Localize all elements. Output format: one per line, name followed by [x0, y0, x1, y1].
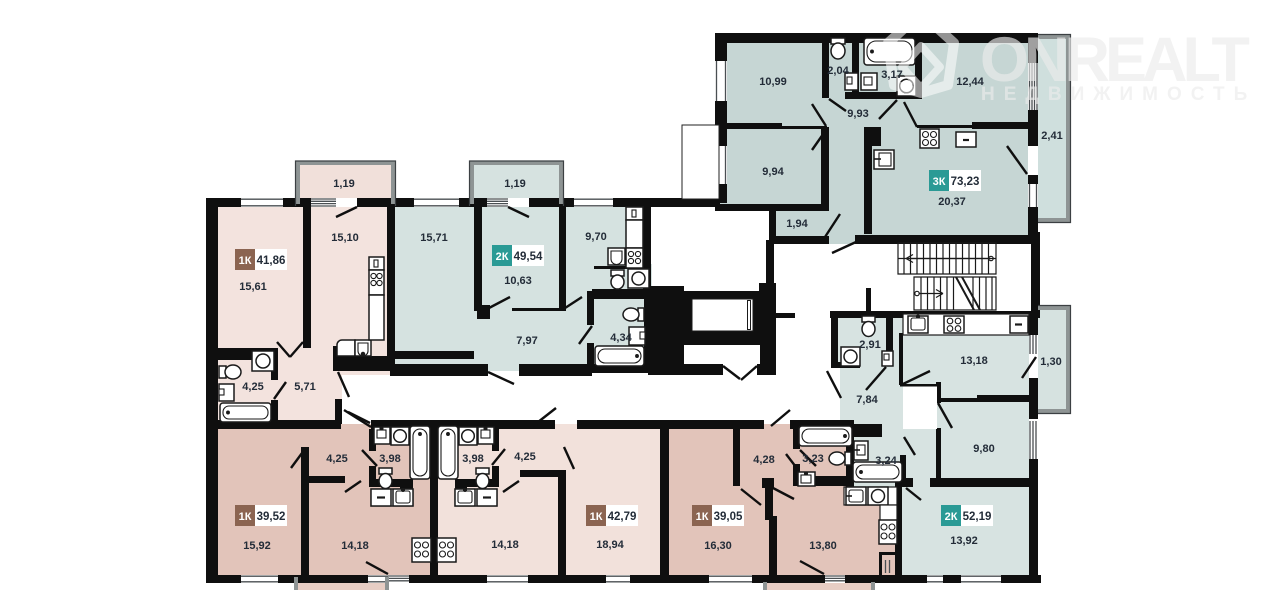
svg-text:39,05: 39,05 [714, 511, 743, 523]
svg-text:9,94: 9,94 [762, 166, 784, 178]
svg-text:3,24: 3,24 [875, 455, 897, 467]
svg-text:2К: 2К [945, 511, 958, 523]
svg-text:1К: 1К [590, 511, 603, 523]
svg-text:1К: 1К [239, 511, 252, 523]
svg-text:9,93: 9,93 [847, 108, 868, 120]
svg-text:20,37: 20,37 [938, 196, 966, 208]
svg-text:5,71: 5,71 [294, 381, 315, 393]
svg-text:1К: 1К [696, 511, 709, 523]
svg-text:13,18: 13,18 [960, 355, 988, 367]
svg-text:9,80: 9,80 [973, 443, 994, 455]
svg-text:4,25: 4,25 [514, 451, 535, 463]
svg-text:15,92: 15,92 [243, 540, 271, 552]
svg-text:НЕДВИЖИМОСТЬ: НЕДВИЖИМОСТЬ [981, 84, 1256, 105]
svg-text:41,86: 41,86 [257, 255, 286, 267]
svg-text:4,25: 4,25 [242, 381, 263, 393]
svg-text:2,41: 2,41 [1041, 130, 1062, 142]
svg-text:49,54: 49,54 [514, 251, 543, 263]
svg-text:16,30: 16,30 [704, 540, 732, 552]
svg-text:4,34: 4,34 [610, 332, 632, 344]
svg-text:15,10: 15,10 [331, 232, 359, 244]
svg-text:10,99: 10,99 [759, 76, 787, 88]
svg-text:9,70: 9,70 [585, 231, 606, 243]
svg-text:3,98: 3,98 [462, 453, 483, 465]
svg-text:1,19: 1,19 [333, 178, 354, 190]
svg-text:7,84: 7,84 [856, 394, 878, 406]
svg-text:42,79: 42,79 [608, 511, 637, 523]
svg-text:7,97: 7,97 [516, 335, 537, 347]
svg-text:18,94: 18,94 [596, 539, 624, 551]
svg-text:1К: 1К [239, 255, 252, 267]
svg-text:2,91: 2,91 [859, 339, 880, 351]
svg-text:1,94: 1,94 [786, 218, 808, 230]
svg-text:3К: 3К [933, 176, 946, 188]
svg-text:2,04: 2,04 [827, 65, 849, 77]
svg-text:14,18: 14,18 [491, 539, 519, 551]
svg-text:3,98: 3,98 [379, 453, 400, 465]
svg-text:15,61: 15,61 [239, 281, 267, 293]
svg-text:2К: 2К [496, 251, 509, 263]
svg-text:73,23: 73,23 [951, 176, 980, 188]
svg-text:4,28: 4,28 [753, 454, 774, 466]
svg-text:1,30: 1,30 [1040, 356, 1061, 368]
svg-text:13,80: 13,80 [809, 540, 837, 552]
svg-text:15,71: 15,71 [420, 232, 448, 244]
svg-text:39,52: 39,52 [257, 511, 286, 523]
svg-text:3,17: 3,17 [881, 69, 902, 81]
svg-text:13,92: 13,92 [950, 535, 978, 547]
svg-text:1,19: 1,19 [504, 178, 525, 190]
svg-text:10,63: 10,63 [504, 275, 532, 287]
svg-text:14,18: 14,18 [341, 540, 369, 552]
svg-text:12,44: 12,44 [956, 76, 984, 88]
svg-text:52,19: 52,19 [963, 511, 992, 523]
svg-text:3,23: 3,23 [802, 453, 823, 465]
svg-text:4,25: 4,25 [326, 453, 347, 465]
